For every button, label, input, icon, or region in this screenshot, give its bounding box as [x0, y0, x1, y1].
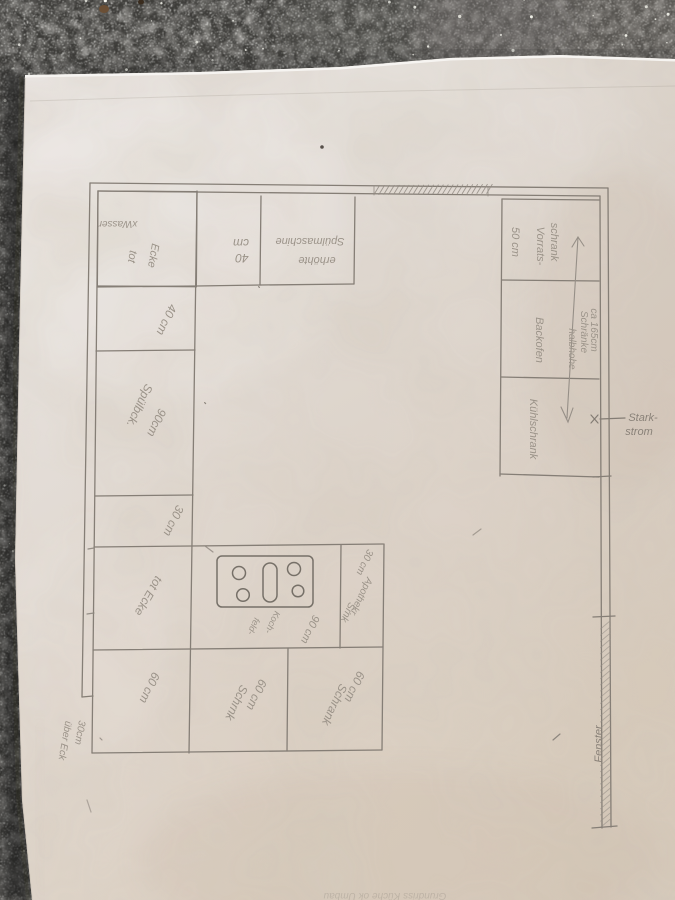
svg-text:schrank: schrank	[548, 223, 560, 262]
svg-text:Grundriss Küche ok Umbau: Grundriss Küche ok Umbau	[323, 890, 446, 900]
svg-text:xWasser: xWasser	[98, 218, 138, 229]
svg-text:halbhohe: halbhohe	[566, 328, 577, 370]
svg-text:Schränke: Schränke	[578, 311, 589, 354]
svg-text:Kühlschrank: Kühlschrank	[527, 399, 539, 460]
svg-text:ca 165cm: ca 165cm	[588, 308, 599, 351]
svg-text:strom: strom	[625, 426, 653, 438]
svg-text:Vorrats-: Vorrats-	[534, 227, 546, 266]
svg-text:40: 40	[235, 251, 249, 265]
svg-text:Stark-: Stark-	[628, 412, 658, 424]
svg-text:Spülmaschine: Spülmaschine	[275, 235, 344, 247]
svg-text:erhöhte: erhöhte	[298, 254, 335, 266]
svg-text:Backofen: Backofen	[533, 317, 545, 363]
svg-text:Fenster: Fenster	[593, 724, 605, 763]
svg-text:50 cm: 50 cm	[509, 227, 521, 257]
svg-text:cm: cm	[233, 236, 249, 250]
